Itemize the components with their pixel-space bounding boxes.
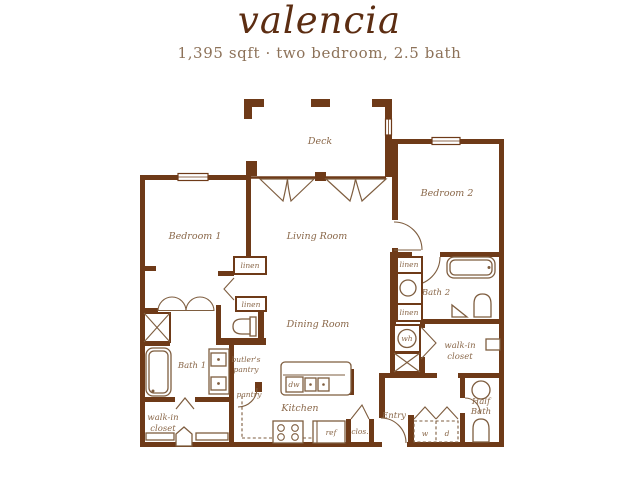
bath2-sink [400,280,416,296]
bedroom2-door-arc [394,222,422,250]
closet-door [351,405,369,419]
toilet-2 [474,294,491,317]
label-bedroom1: Bedroom 1 [168,231,222,242]
label-walkin-right-1: walk-in [444,341,475,351]
bath1-double-door-arc-left [158,297,186,311]
label-clos: clos. [351,427,368,436]
stove [273,421,303,443]
label-living-room: Living Room [286,231,348,242]
label-entry: Entry [381,411,406,421]
floor-plan-drawing: Deck Bedroom 1 Bedroom 2 Living Room Din… [0,0,639,479]
label-linen-1: linen [241,261,260,270]
walk-in-shelf [486,339,500,350]
walk-in-left-door [176,398,194,409]
entry-door-arc [381,418,406,443]
closet-shelf-2 [196,433,228,440]
bath1-double-door-arc-right [186,297,214,311]
label-linen-4: linen [400,308,419,317]
bath2-corner-shelf [452,305,467,317]
label-linen-2: linen [242,300,261,309]
laundry-bifold-left [414,407,436,419]
french-doors [260,179,386,201]
label-pantry: pantry [237,390,263,399]
label-wh: wh [401,334,412,343]
toilet-3 [473,419,489,442]
floor-plan-page: valencia 1,395 sqft · two bedroom, 2.5 b… [0,0,639,479]
closet-shelf-1 [146,433,174,440]
label-half-bath-1: Half [471,397,492,407]
label-butlers-2: pantry [234,365,260,374]
label-dining-room: Dining Room [286,319,350,330]
toilet-1-tank [250,317,256,336]
door-swings [158,222,480,443]
closet-hamper [176,427,192,446]
windows [178,119,460,181]
label-linen-3: linen [400,260,419,269]
laundry-bifold-right [436,407,458,419]
label-walkin-left-1: walk-in [147,413,178,423]
label-dryer: d [445,429,450,438]
label-ref: ref [326,428,338,437]
toilet-1 [233,319,250,334]
label-half-bath-2: Bath [470,407,491,417]
walk-in-bifold-door [421,327,436,359]
label-bedroom2: Bedroom 2 [420,188,474,199]
laundry-fixtures [414,421,458,442]
label-butlers-1: butler's [232,355,261,364]
label-kitchen: Kitchen [280,403,318,414]
linen-bifold-door [224,278,234,300]
label-dw: dw [288,380,300,389]
label-bath1: Bath 1 [177,361,206,371]
label-walkin-left-2: closet [150,424,176,434]
label-deck: Deck [307,136,333,147]
label-bath2: Bath 2 [421,288,450,298]
label-washer: w [422,429,429,438]
label-walkin-right-2: closet [447,352,473,362]
